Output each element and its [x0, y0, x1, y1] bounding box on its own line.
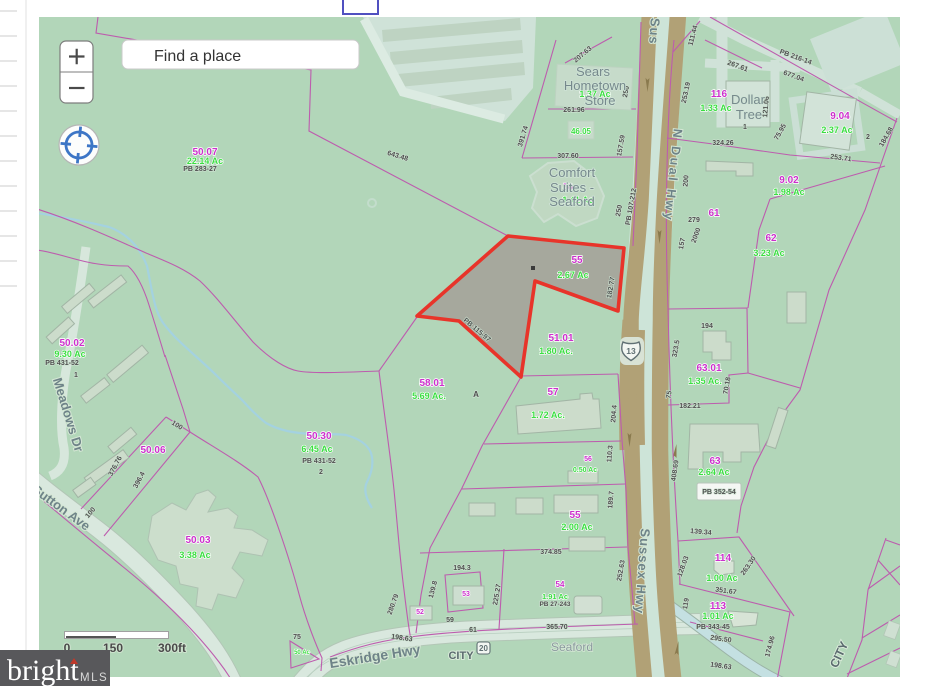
svg-text:PB 352-54: PB 352-54: [702, 489, 736, 496]
svg-text:1: 1: [743, 124, 747, 131]
svg-text:1: 1: [74, 372, 78, 379]
svg-text:50.02: 50.02: [59, 338, 84, 349]
svg-text:324.26: 324.26: [712, 140, 734, 147]
svg-text:50 Ac: 50 Ac: [294, 650, 310, 656]
svg-text:46.05: 46.05: [571, 127, 592, 136]
svg-text:1.72 Ac.: 1.72 Ac.: [531, 410, 565, 420]
svg-text:PB 431-52: PB 431-52: [45, 360, 79, 367]
svg-text:Find a place: Find a place: [154, 48, 241, 65]
svg-text:374.85: 374.85: [540, 549, 562, 556]
svg-text:1.98 Ac: 1.98 Ac: [773, 187, 804, 197]
svg-text:63.01: 63.01: [696, 363, 721, 374]
svg-text:56: 56: [584, 456, 592, 463]
svg-text:55: 55: [571, 255, 583, 266]
svg-text:Store: Store: [584, 93, 615, 108]
svg-text:75: 75: [293, 634, 301, 641]
svg-text:MLS: MLS: [80, 672, 108, 684]
svg-text:194.3: 194.3: [453, 565, 471, 572]
svg-text:0.50 Ac: 0.50 Ac: [573, 467, 597, 474]
svg-text:57: 57: [547, 387, 559, 398]
svg-text:1.01 Ac: 1.01 Ac: [702, 611, 733, 621]
svg-text:Seaford: Seaford: [549, 194, 595, 209]
svg-text:Dollar: Dollar: [731, 92, 766, 107]
svg-text:307.60: 307.60: [557, 153, 579, 160]
svg-text:9.04: 9.04: [830, 111, 850, 122]
svg-text:9.30 Ac: 9.30 Ac: [54, 349, 85, 359]
svg-text:75: 75: [665, 390, 673, 399]
svg-text:114: 114: [715, 553, 732, 564]
svg-text:1.80 Ac.: 1.80 Ac.: [539, 346, 573, 356]
svg-text:20: 20: [479, 644, 488, 653]
svg-text:50.03: 50.03: [185, 535, 210, 546]
svg-text:52: 52: [416, 609, 424, 616]
svg-text:300ft: 300ft: [158, 641, 186, 655]
svg-text:200: 200: [683, 175, 691, 187]
svg-text:6.45 Ac: 6.45 Ac: [301, 444, 332, 454]
svg-text:63: 63: [709, 456, 721, 467]
svg-text:2.00 Ac: 2.00 Ac: [561, 522, 592, 532]
svg-text:110.3: 110.3: [606, 445, 614, 463]
svg-text:194: 194: [701, 323, 713, 330]
svg-text:Suites -: Suites -: [550, 180, 594, 195]
svg-text:Tree: Tree: [736, 107, 762, 122]
svg-text:51.01: 51.01: [548, 333, 573, 344]
svg-text:61: 61: [708, 208, 720, 219]
svg-text:1.35 Ac.: 1.35 Ac.: [688, 376, 722, 386]
svg-text:54: 54: [556, 580, 565, 589]
svg-text:9.02: 9.02: [779, 175, 799, 186]
svg-text:1.91 Ac: 1.91 Ac: [542, 592, 568, 601]
svg-text:61: 61: [469, 627, 477, 634]
svg-text:CITY: CITY: [448, 650, 474, 662]
svg-text:116: 116: [711, 89, 728, 100]
svg-text:A: A: [473, 390, 479, 399]
svg-text:22.14 Ac: 22.14 Ac: [187, 156, 223, 166]
svg-text:Sears: Sears: [576, 64, 610, 79]
svg-text:1.33 Ac: 1.33 Ac: [700, 103, 731, 113]
svg-text:PB 283-27: PB 283-27: [183, 166, 217, 173]
svg-text:PB 343-45: PB 343-45: [696, 624, 730, 631]
svg-text:50.30: 50.30: [306, 431, 331, 442]
svg-text:1.00 Ac: 1.00 Ac: [706, 573, 737, 583]
svg-text:261.96: 261.96: [563, 107, 585, 114]
svg-text:Seaford: Seaford: [551, 640, 593, 654]
svg-text:2.37 Ac: 2.37 Ac: [821, 125, 852, 135]
svg-text:2: 2: [866, 134, 870, 141]
svg-text:2: 2: [319, 469, 323, 476]
svg-text:62: 62: [765, 233, 777, 244]
svg-text:5.69 Ac.: 5.69 Ac.: [412, 391, 446, 401]
svg-text:2.67 Ac: 2.67 Ac: [557, 270, 588, 280]
svg-text:182.21: 182.21: [679, 403, 701, 410]
svg-text:Comfort: Comfort: [549, 165, 596, 180]
svg-text:bright: bright: [7, 654, 79, 686]
svg-text:13: 13: [626, 346, 636, 356]
svg-text:365.70: 365.70: [546, 624, 568, 631]
svg-text:2.64 Ac: 2.64 Ac: [698, 467, 729, 477]
svg-text:3.38 Ac: 3.38 Ac: [179, 550, 210, 560]
svg-text:PB 431-52: PB 431-52: [302, 458, 336, 465]
svg-text:50.06: 50.06: [140, 445, 165, 456]
svg-text:Hometown: Hometown: [564, 78, 626, 93]
svg-text:279: 279: [688, 217, 700, 224]
svg-text:3.23 Ac: 3.23 Ac: [753, 248, 784, 258]
svg-text:53: 53: [462, 591, 470, 598]
svg-text:58.01: 58.01: [419, 378, 444, 389]
svg-text:55: 55: [569, 510, 581, 521]
svg-text:PB 27-243: PB 27-243: [539, 601, 570, 608]
svg-text:59: 59: [446, 617, 454, 624]
svg-text:Sus: Sus: [646, 17, 663, 45]
